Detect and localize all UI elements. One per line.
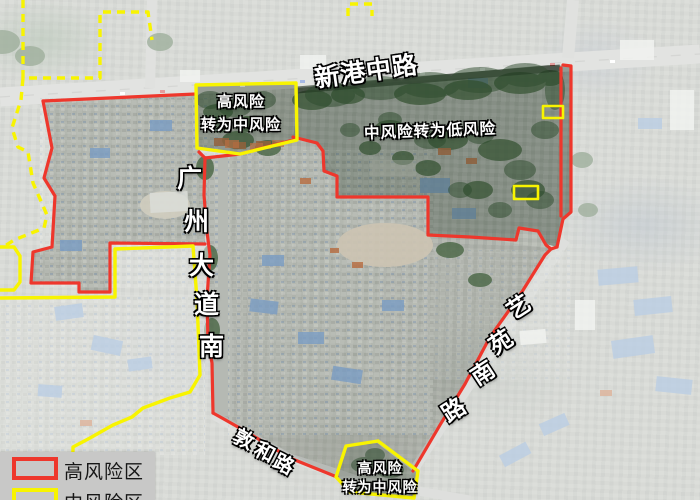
map-canvas: 新港中路 广 州 大 道 南 艺 苑 南 路 敦 和 路 高风险 转为中风险 中… [0, 0, 700, 500]
legend-label-medium-risk: 中风险区 [64, 488, 144, 500]
satellite-base [0, 0, 700, 500]
legend-label-high-risk: 高风险区 [64, 457, 144, 484]
legend-swatch-medium-risk [12, 488, 58, 500]
legend-swatch-high-risk [12, 457, 58, 480]
legend: 高风险区 中风险区 [0, 452, 155, 500]
